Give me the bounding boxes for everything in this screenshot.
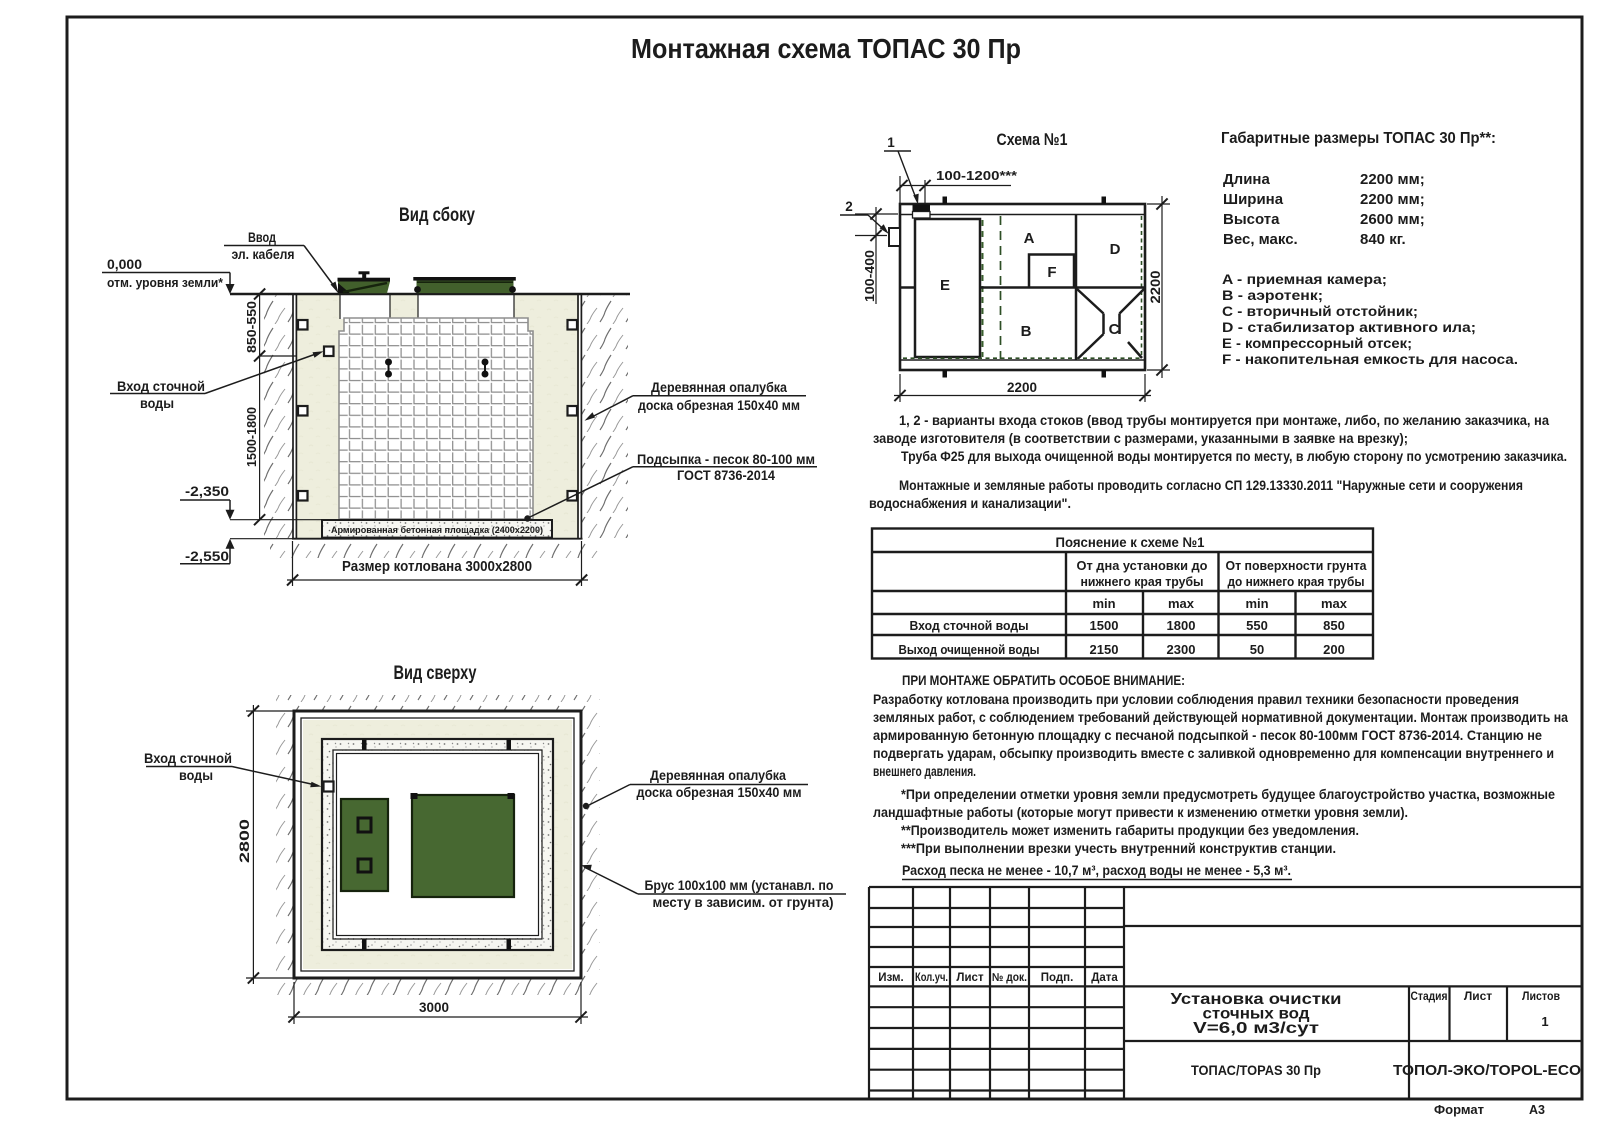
svg-text:Дата: Дата xyxy=(1091,972,1118,984)
svg-text:2200 мм;: 2200 мм; xyxy=(1360,171,1425,188)
svg-text:850-550: 850-550 xyxy=(244,301,259,353)
svg-text:1500: 1500 xyxy=(1090,618,1119,633)
svg-text:2600 мм;: 2600 мм; xyxy=(1360,211,1425,228)
svg-text:2800: 2800 xyxy=(237,819,252,863)
svg-text:F - накопительная емкость для: F - накопительная емкость для насоса. xyxy=(1222,351,1518,367)
svg-text:min: min xyxy=(1092,596,1115,611)
svg-text:840 кг.: 840 кг. xyxy=(1360,231,1406,248)
svg-text:2150: 2150 xyxy=(1090,642,1119,657)
svg-text:ПРИ МОНТАЖЕ ОБРАТИТЬ ОСОБОЕ ВН: ПРИ МОНТАЖЕ ОБРАТИТЬ ОСОБОЕ ВНИМАНИЕ: xyxy=(902,672,1185,688)
svg-text:Расход песка не менее - 10,7 м: Расход песка не менее - 10,7 м³, расход … xyxy=(902,862,1291,878)
svg-text:отм. уровня земли*: отм. уровня земли* xyxy=(107,276,223,290)
svg-text:Вход сточной воды: Вход сточной воды xyxy=(910,618,1029,633)
svg-text:ГОСТ 8736-2014: ГОСТ 8736-2014 xyxy=(677,468,775,483)
svg-text:2: 2 xyxy=(845,199,853,214)
svg-text:Вид сверху: Вид сверху xyxy=(394,663,477,684)
svg-text:А3: А3 xyxy=(1529,1103,1545,1117)
svg-text:Длина: Длина xyxy=(1223,171,1270,188)
svg-text:1: 1 xyxy=(1541,1014,1548,1029)
svg-text:Подсыпка - песок 80-100 мм: Подсыпка - песок 80-100 мм xyxy=(637,452,815,467)
svg-text:Ввод: Ввод xyxy=(248,230,276,245)
svg-text:Стадия: Стадия xyxy=(1411,991,1448,1003)
svg-text:ландшафтные работы (которые мо: ландшафтные работы (которые могут привес… xyxy=(873,805,1408,820)
svg-text:внешнего давления.: внешнего давления. xyxy=(873,764,976,779)
svg-text:A - приемная камера;: A - приемная камера; xyxy=(1222,271,1387,287)
svg-text:A: A xyxy=(1024,230,1035,247)
svg-text:3000: 3000 xyxy=(419,1000,449,1015)
svg-text:Размер котлована 3000х2800: Размер котлована 3000х2800 xyxy=(342,559,532,575)
svg-text:доска обрезная 150х40 мм: доска обрезная 150х40 мм xyxy=(638,398,800,413)
svg-text:ТОПОЛ-ЭКО/TOPOL-ECO: ТОПОЛ-ЭКО/TOPOL-ECO xyxy=(1393,1062,1581,1079)
svg-text:Монтажная схема ТОПАС 30 Пр: Монтажная схема ТОПАС 30 Пр xyxy=(631,33,1021,64)
svg-text:850: 850 xyxy=(1323,618,1345,633)
svg-text:нижнего края трубы: нижнего края трубы xyxy=(1081,574,1204,589)
svg-text:**Производитель может изменить: **Производитель может изменить габариты … xyxy=(901,823,1359,838)
svg-text:Вход сточной: Вход сточной xyxy=(144,751,232,766)
svg-text:Разработку котлована производи: Разработку котлована производить при усл… xyxy=(873,692,1519,707)
svg-text:месту в зависим. от грунта): месту в зависим. от грунта) xyxy=(653,895,834,910)
svg-text:0,000: 0,000 xyxy=(107,256,142,272)
svg-text:армированную бетонную площадку: армированную бетонную площадку с песчано… xyxy=(873,728,1542,743)
svg-text:Деревянная опалубка: Деревянная опалубка xyxy=(651,380,787,395)
svg-text:V=6,0 м3/сут: V=6,0 м3/сут xyxy=(1193,1020,1320,1037)
svg-text:1, 2 - варианты входа стоков: 1, 2 - варианты входа стоков (ввод трубы… xyxy=(899,413,1549,428)
svg-text:*При определении отметки уровн: *При определении отметки уровня земли пр… xyxy=(901,787,1555,802)
svg-text:1500-1800: 1500-1800 xyxy=(244,407,259,467)
svg-text:Труба Ф25 для выхода очищенной: Труба Ф25 для выхода очищенной воды монт… xyxy=(901,449,1567,464)
svg-text:100-1200***: 100-1200*** xyxy=(936,168,1018,183)
svg-text:водоснабжения и канализации".: водоснабжения и канализации". xyxy=(869,496,1071,511)
svg-text:Лист: Лист xyxy=(1464,989,1492,1003)
svg-text:подвергать ударам, обсыпку про: подвергать ударам, обсыпку производить в… xyxy=(873,746,1554,761)
svg-text:Кол.уч.: Кол.уч. xyxy=(915,972,948,984)
svg-text:2200: 2200 xyxy=(1148,271,1163,304)
svg-text:Листов: Листов xyxy=(1522,991,1560,1003)
svg-text:2300: 2300 xyxy=(1167,642,1196,657)
svg-text:Схема №1: Схема №1 xyxy=(997,130,1068,149)
svg-text:От дна установки до: От дна установки до xyxy=(1077,558,1208,573)
svg-text:max: max xyxy=(1321,596,1348,611)
svg-text:-2,550: -2,550 xyxy=(185,548,229,564)
svg-text:Деревянная опалубка: Деревянная опалубка xyxy=(650,768,786,783)
svg-text:C: C xyxy=(1109,321,1120,338)
svg-text:200: 200 xyxy=(1323,642,1345,657)
svg-text:B: B xyxy=(1021,323,1032,340)
svg-text:550: 550 xyxy=(1246,618,1268,633)
svg-text:эл. кабеля: эл. кабеля xyxy=(232,247,295,262)
svg-text:Изм.: Изм. xyxy=(878,972,903,984)
svg-text:B - аэротенк;: B - аэротенк; xyxy=(1222,287,1323,303)
svg-text:до нижнего края трубы: до нижнего края трубы xyxy=(1228,574,1365,589)
svg-text:1800: 1800 xyxy=(1167,618,1196,633)
svg-text:Вес, макс.: Вес, макс. xyxy=(1223,231,1298,248)
svg-text:ТОПАС/TOPAS 30 Пр: ТОПАС/TOPAS 30 Пр xyxy=(1191,1063,1321,1078)
svg-text:От поверхности грунта: От поверхности грунта xyxy=(1226,558,1368,573)
svg-text:воды: воды xyxy=(140,396,174,411)
svg-text:Вход сточной: Вход сточной xyxy=(117,379,205,394)
svg-text:min: min xyxy=(1245,596,1268,611)
svg-text:50: 50 xyxy=(1250,642,1264,657)
svg-text:F: F xyxy=(1047,264,1056,281)
svg-text:№ док.: № док. xyxy=(992,972,1027,984)
svg-text:Подп.: Подп. xyxy=(1041,972,1074,984)
svg-text:C - вторичный отстойник;: C - вторичный отстойник; xyxy=(1222,303,1418,319)
svg-text:земляных работ, с соблюдением: земляных работ, с соблюдением требований… xyxy=(873,710,1568,725)
svg-text:Ширина: Ширина xyxy=(1223,191,1284,208)
svg-text:Вид сбоку: Вид сбоку xyxy=(399,205,475,226)
svg-text:заводе изготовителя (в соответ: заводе изготовителя (в соответствии с ра… xyxy=(873,431,1408,446)
svg-text:доска обрезная 150х40 мм: доска обрезная 150х40 мм xyxy=(637,785,802,800)
svg-text:-2,350: -2,350 xyxy=(185,483,229,499)
svg-text:Брус 100х100 мм (устанавл. по: Брус 100х100 мм (устанавл. по xyxy=(645,878,834,893)
svg-text:Лист: Лист xyxy=(956,972,984,984)
svg-text:E - компрессорный отсек;: E - компрессорный отсек; xyxy=(1222,335,1412,351)
svg-text:воды: воды xyxy=(179,768,213,783)
svg-text:1: 1 xyxy=(887,135,895,150)
svg-text:Формат: Формат xyxy=(1434,1103,1484,1117)
svg-text:Армированная бетонная площадка: Армированная бетонная площадка (2400х220… xyxy=(331,525,543,536)
svg-text:E: E xyxy=(940,277,950,294)
svg-text:max: max xyxy=(1168,596,1195,611)
svg-text:Монтажные и земляные работы пр: Монтажные и земляные работы проводить со… xyxy=(899,478,1523,493)
svg-text:2200: 2200 xyxy=(1007,380,1037,395)
svg-text:D: D xyxy=(1110,241,1121,258)
svg-text:Выход очищенной воды: Выход очищенной воды xyxy=(899,642,1040,657)
svg-text:2200 мм;: 2200 мм; xyxy=(1360,191,1425,208)
svg-text:100-400: 100-400 xyxy=(862,250,877,302)
svg-text:Пояснение к схеме №1: Пояснение к схеме №1 xyxy=(1056,534,1205,550)
svg-text:D - стабилизатор активного ила: D - стабилизатор активного ила; xyxy=(1222,319,1476,335)
svg-text:Высота: Высота xyxy=(1223,211,1280,228)
svg-text:Габаритные размеры ТОПАС 30 Пр: Габаритные размеры ТОПАС 30 Пр**: xyxy=(1221,130,1496,147)
svg-text:***При выполнении врезки учест: ***При выполнении врезки учесть внутренн… xyxy=(901,841,1336,856)
